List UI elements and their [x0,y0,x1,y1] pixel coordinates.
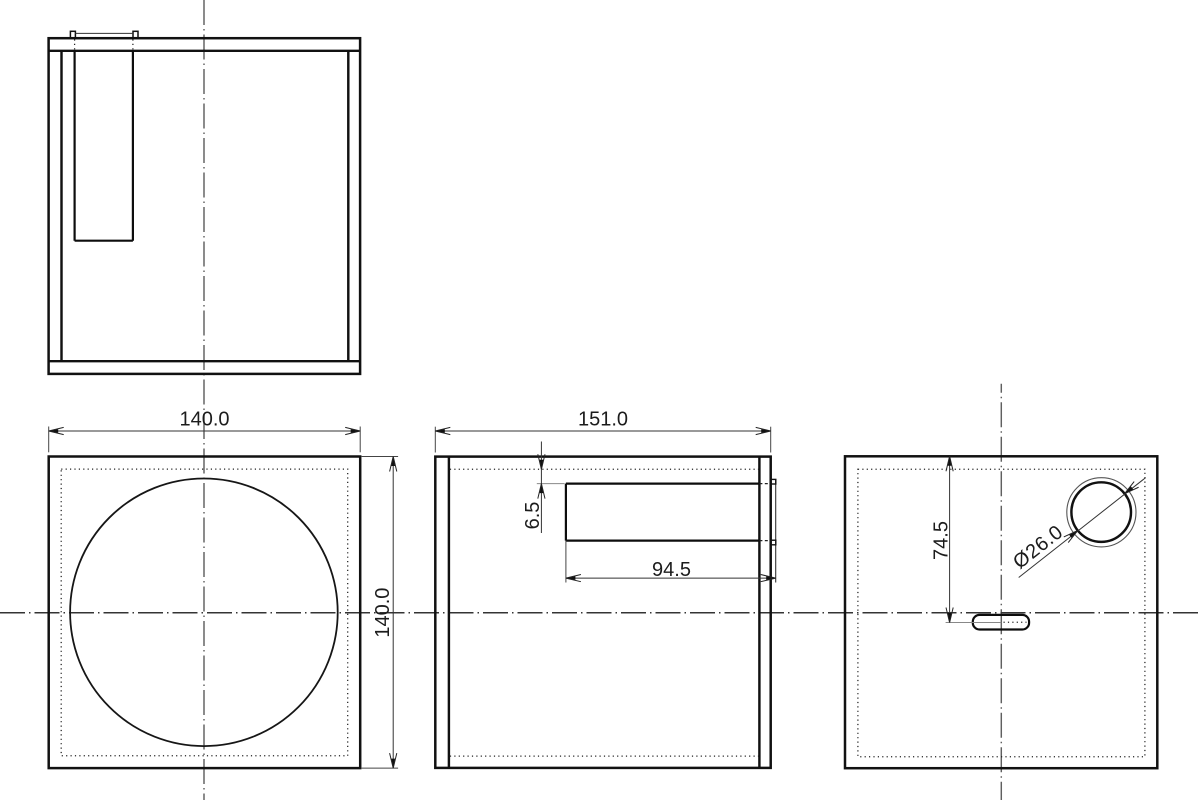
svg-text:74.5: 74.5 [931,521,953,560]
svg-text:6.5: 6.5 [522,502,544,530]
svg-text:140.0: 140.0 [372,588,394,638]
svg-text:94.5: 94.5 [652,559,691,581]
svg-text:151.0: 151.0 [578,409,628,431]
svg-text:140.0: 140.0 [179,409,229,431]
